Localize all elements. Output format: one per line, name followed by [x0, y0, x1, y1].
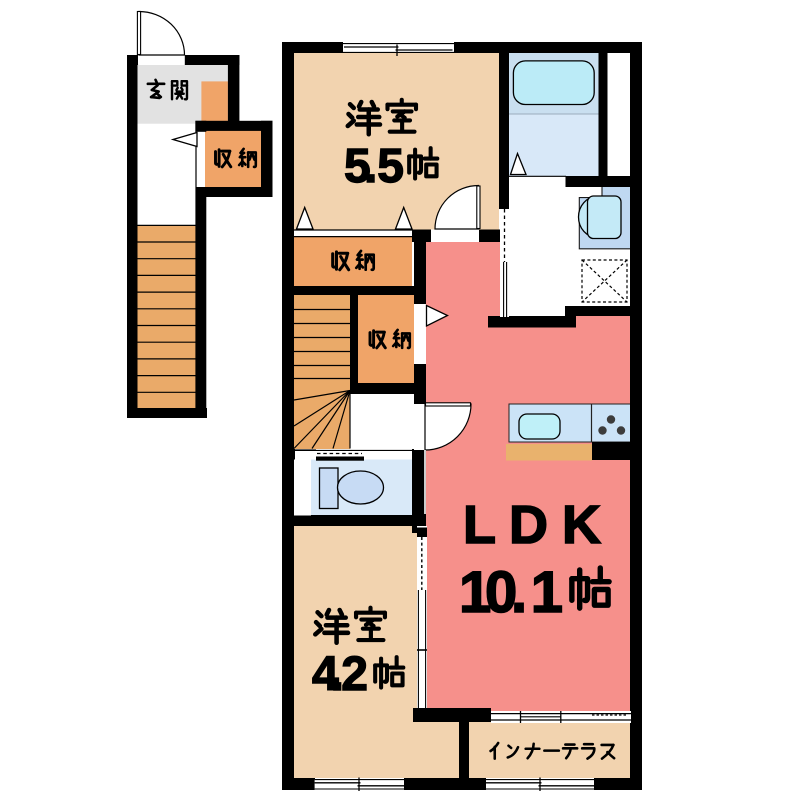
- svg-text:L D K: L D K: [463, 495, 601, 555]
- svg-text:5. 5: 5. 5: [344, 140, 404, 193]
- svg-text:10. 1: 10. 1: [459, 560, 563, 625]
- svg-text:4. 2: 4. 2: [312, 648, 368, 701]
